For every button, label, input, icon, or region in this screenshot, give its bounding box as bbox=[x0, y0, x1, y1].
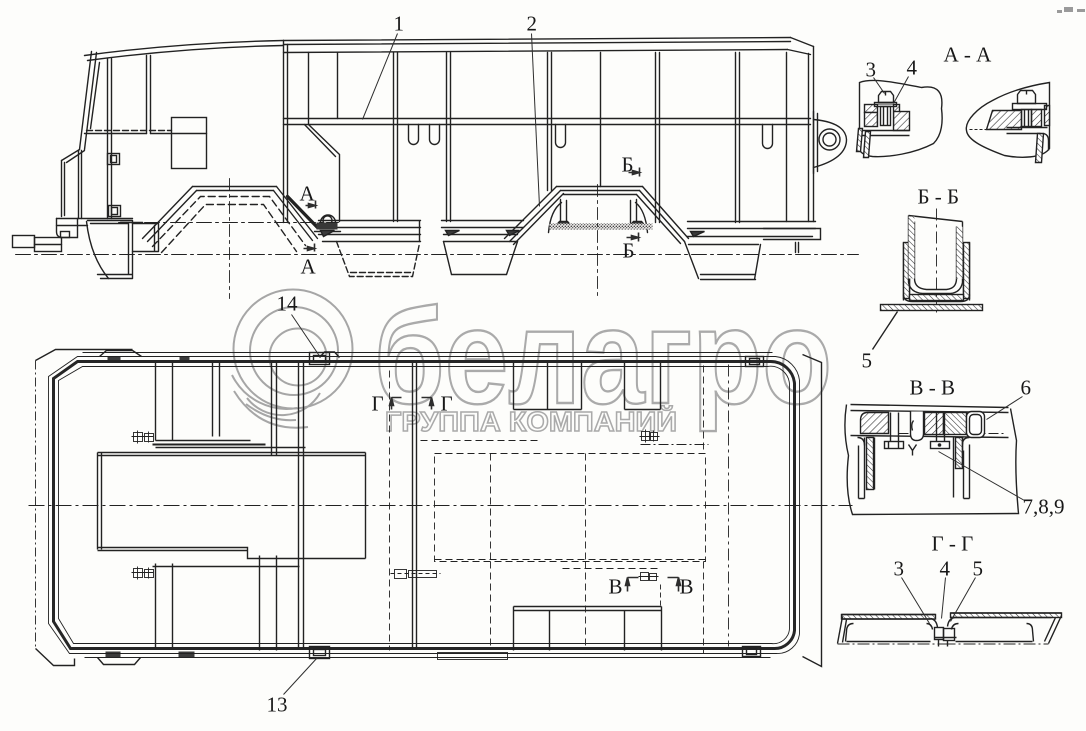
svg-text:1: 1 bbox=[394, 12, 405, 36]
svg-text:4: 4 bbox=[907, 56, 918, 80]
svg-text:7,8,9: 7,8,9 bbox=[1023, 495, 1065, 519]
svg-text:В: В bbox=[609, 575, 623, 599]
svg-text:14: 14 bbox=[277, 292, 299, 316]
svg-text:5: 5 bbox=[973, 557, 984, 581]
svg-text:4: 4 bbox=[940, 557, 951, 581]
svg-text:Г: Г bbox=[372, 392, 384, 416]
svg-text:5: 5 bbox=[862, 349, 873, 373]
svg-text:Г - Г: Г - Г bbox=[932, 532, 974, 556]
svg-text:Б: Б bbox=[623, 239, 635, 263]
svg-text:Б - Б: Б - Б bbox=[918, 185, 960, 209]
svg-text:А - А: А - А bbox=[944, 43, 993, 67]
svg-text:В: В bbox=[680, 575, 694, 599]
svg-text:6: 6 bbox=[1021, 376, 1032, 400]
svg-text:А: А bbox=[300, 182, 316, 206]
svg-text:Г: Г bbox=[441, 392, 453, 416]
svg-text:А: А bbox=[301, 255, 317, 279]
svg-text:2: 2 bbox=[527, 12, 538, 36]
svg-text:В - В: В - В bbox=[910, 376, 956, 400]
svg-text:3: 3 bbox=[894, 557, 905, 581]
svg-text:3: 3 bbox=[866, 58, 877, 82]
svg-text:13: 13 bbox=[267, 693, 288, 717]
